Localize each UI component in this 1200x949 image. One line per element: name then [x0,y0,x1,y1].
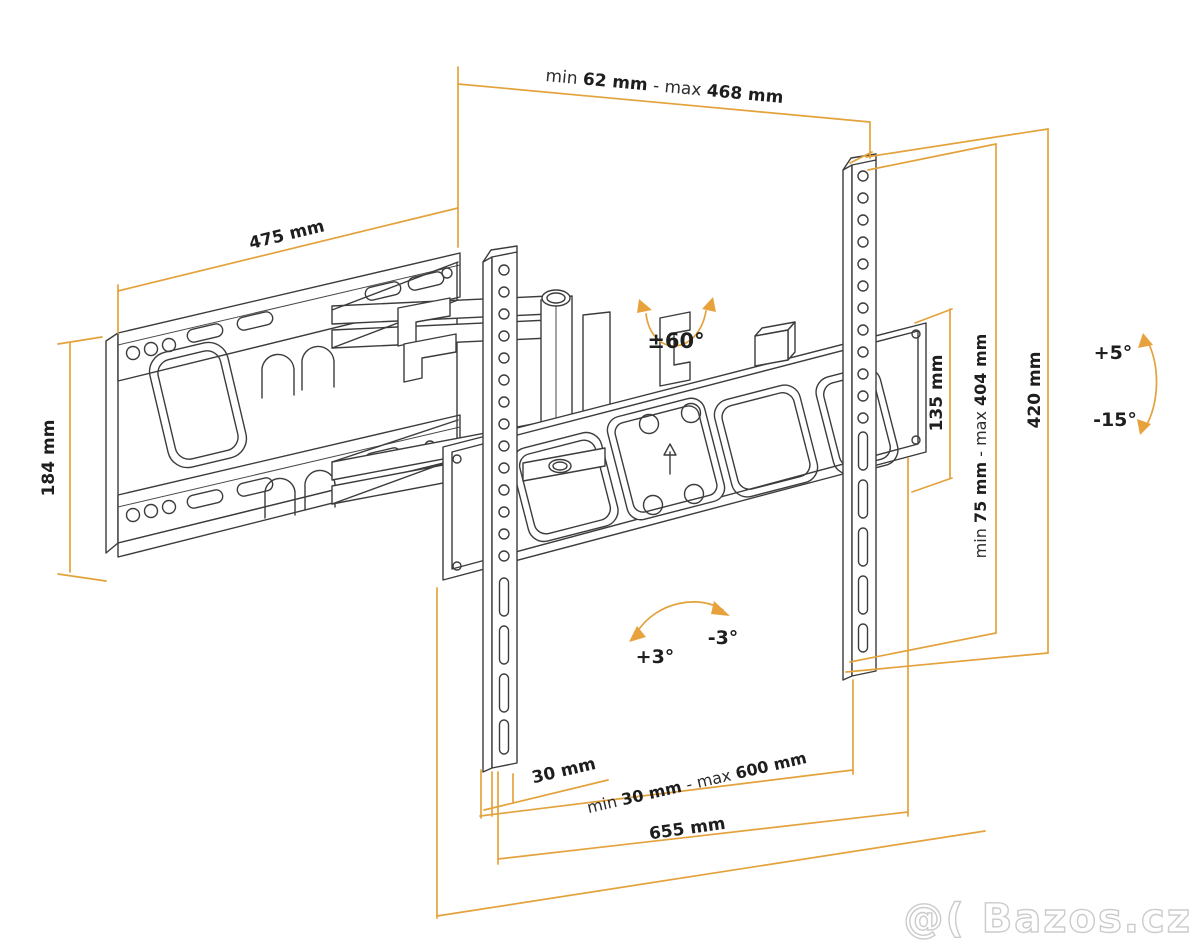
arc-arrowhead-icon [1138,333,1153,348]
dim-wall-plate-height-label: 184 mm [39,420,59,497]
arc-line [1145,340,1157,428]
tv-rail-left [483,246,517,772]
arc-arrowhead-icon [702,297,716,312]
dim-rail-spacing-range-label: min 30 mm - max 600 mm [585,748,808,817]
cable-arch [262,354,294,398]
spacer-block [755,330,788,366]
dim-rail-inset-label: 30 mm [530,754,598,788]
dim-arm-reach-label: 475 mm [247,216,326,254]
dim-vesa-height-label: 135 mm [927,355,947,432]
dim-wall-plate-height: 184 mm [39,337,106,581]
watermark: @( Bazos.cz [904,896,1192,942]
dim-top-width-label: min 62 mm - max 468 mm [545,66,785,108]
swivel-angle-label: ±60° [647,329,704,353]
tilt-down-label: -15° [1093,409,1137,431]
cable-arch [302,346,334,390]
technical-drawing-canvas: min 62 mm - max 468 mm 475 mm 184 mm ±60… [0,0,1200,949]
level-arc: +3° -3° [629,601,738,668]
level-plus-label: +3° [636,646,675,668]
technical-drawing-page: min 62 mm - max 468 mm 475 mm 184 mm ±60… [0,0,1200,949]
arc-arrowhead-icon [629,626,646,642]
wall-plate [106,253,460,557]
level-minus-label: -3° [708,627,739,649]
dim-top-width: min 62 mm - max 468 mm [458,66,872,247]
arc-arrowhead-icon [711,601,730,616]
dim-bracket-height-range-label: min 75 mm - max 404 mm [971,334,990,559]
dim-crossbar-width-label: 655 mm [648,814,727,844]
arc-arrowhead-icon [637,299,652,313]
dim-rail-height-label: 420 mm [1025,352,1045,429]
tv-rail-right [843,154,876,680]
tilt-arc: +5° -15° [1093,333,1156,435]
tilt-up-label: +5° [1094,342,1133,364]
